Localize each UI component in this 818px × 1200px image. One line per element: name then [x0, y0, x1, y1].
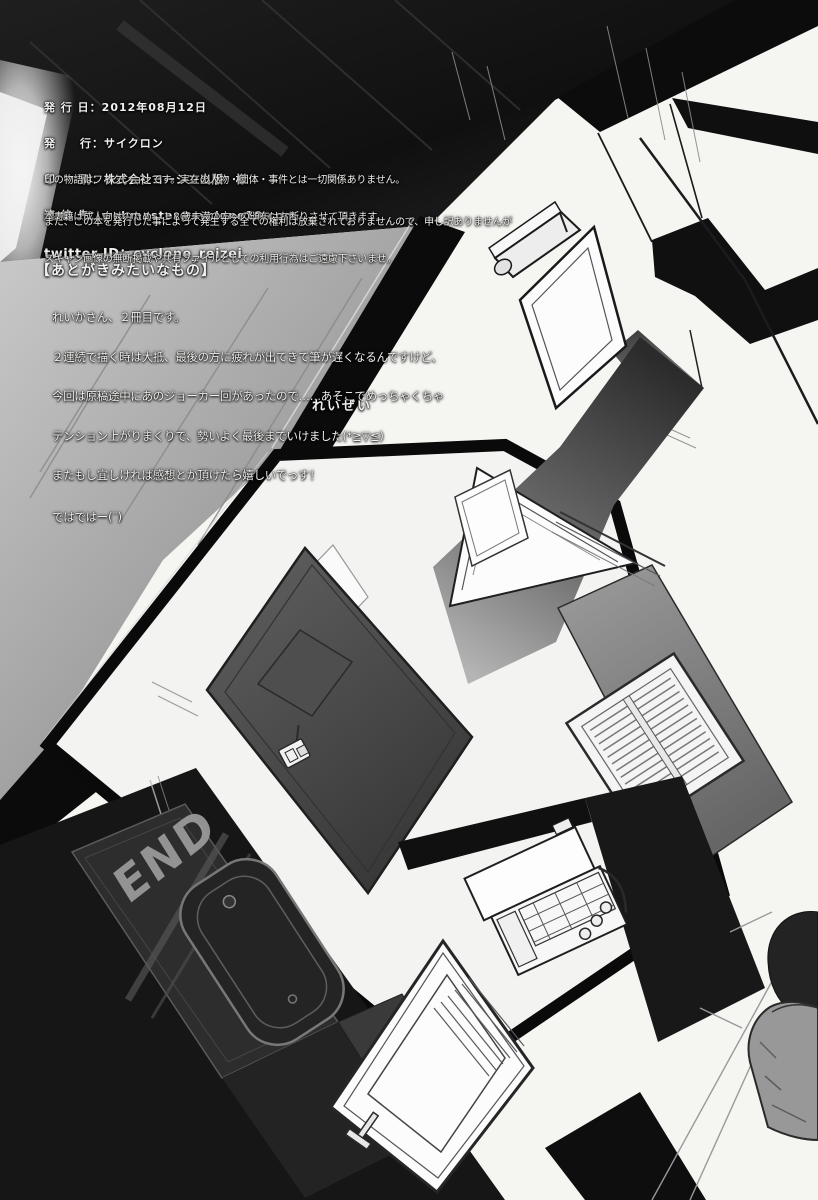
afterword-line: ではではー(¨) [52, 512, 444, 524]
afterword-line: れいかさん、２冊目です。 [52, 312, 444, 324]
afterword-line: テンション上がりまくりで、勢いよく最後までいけました(*≧▽≦) [52, 431, 444, 443]
afterword-line: 今回は原稿途中にあのジョーカー回があったので……あそこでめっちゃくちゃ [52, 391, 444, 403]
credits-line: 発 行 日：2012年08月12日 [44, 102, 297, 113]
disclaimer-line: この物語はフィクションです。実在の人物・団体・事件とは一切関係ありません。 [44, 176, 405, 186]
credits-line: 発 行：サイクロン [44, 138, 297, 149]
doujinshi-afterword-page: END [0, 0, 818, 1200]
afterword-line: ２連続で描く時は大抵、最後の方に疲れが出てきて筆が遅くなるんですけど、 [52, 352, 444, 364]
rights-line: また、この本を発行した事によって発生する全ての権利は放棄されておりませんので、申… [44, 218, 512, 228]
afterword-body: れいかさん、２冊目です。 ２連続で描く時は大抵、最後の方に疲れが出てきて筆が遅く… [52, 289, 444, 551]
artist-signature: れいぜい [312, 400, 372, 413]
afterword-line: またもし宜しければ感想とか頂けたら嬉しいでっす！ [52, 470, 444, 482]
afterword-heading: 【あとがきみたいなもの】 [36, 264, 216, 278]
